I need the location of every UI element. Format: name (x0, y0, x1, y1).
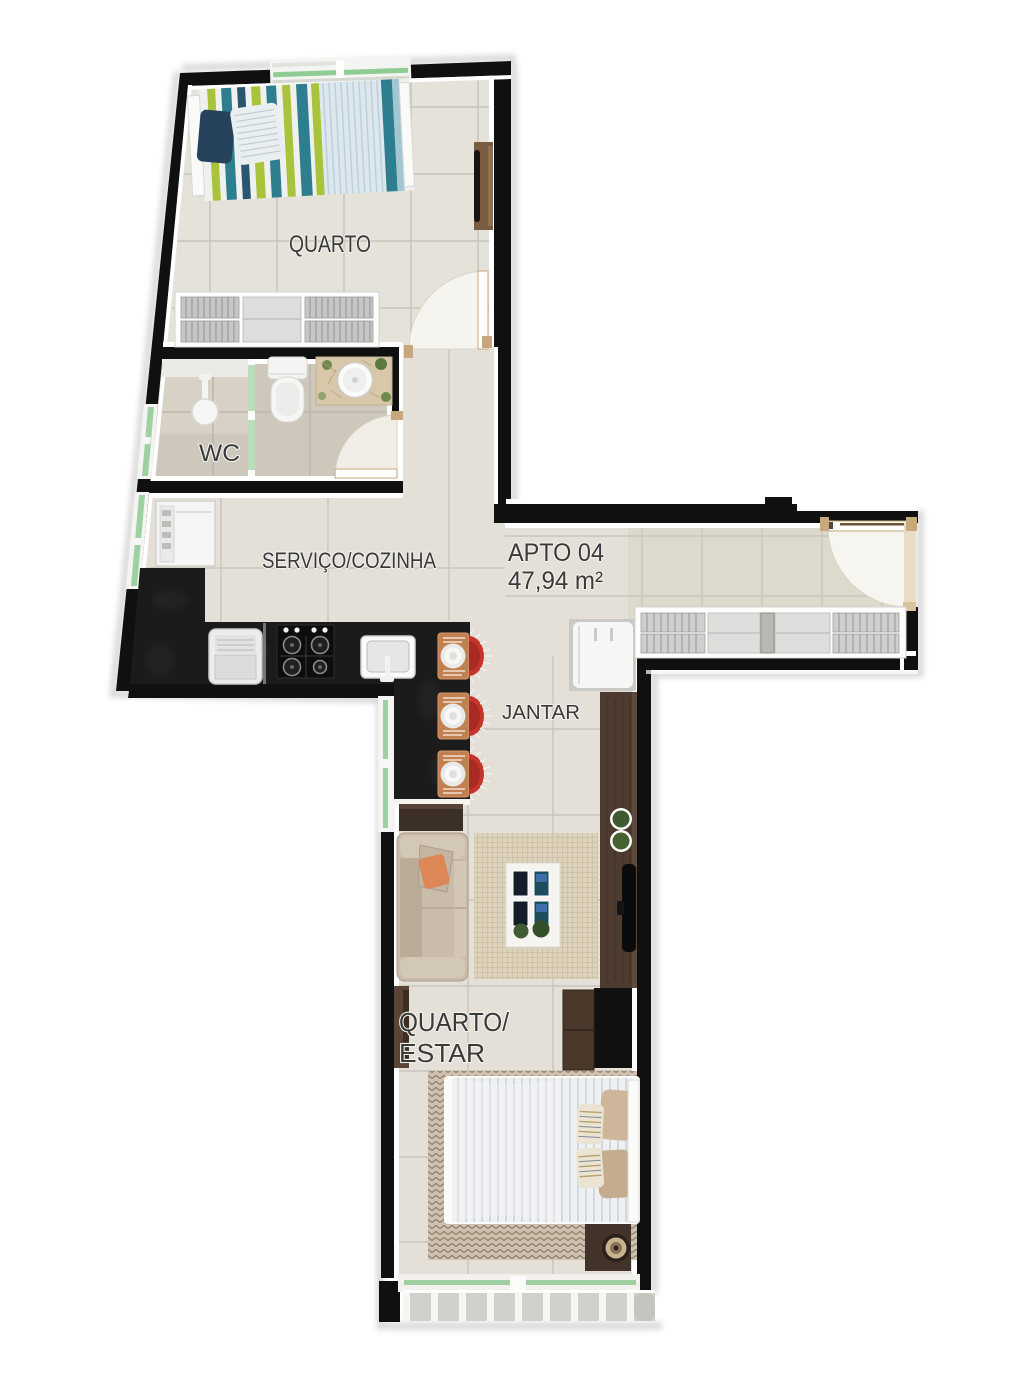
svg-text:APTO 04: APTO 04 (508, 539, 604, 567)
svg-text:QUARTO: QUARTO (289, 231, 371, 258)
svg-text:SERVIÇO/COZINHA: SERVIÇO/COZINHA (262, 548, 436, 573)
svg-text:WC: WC (199, 440, 240, 467)
svg-text:QUARTO/: QUARTO/ (399, 1007, 510, 1037)
svg-text:47,94 m²: 47,94 m² (508, 567, 603, 595)
svg-text:JANTAR: JANTAR (502, 702, 580, 724)
svg-text:ESTAR: ESTAR (399, 1038, 485, 1068)
